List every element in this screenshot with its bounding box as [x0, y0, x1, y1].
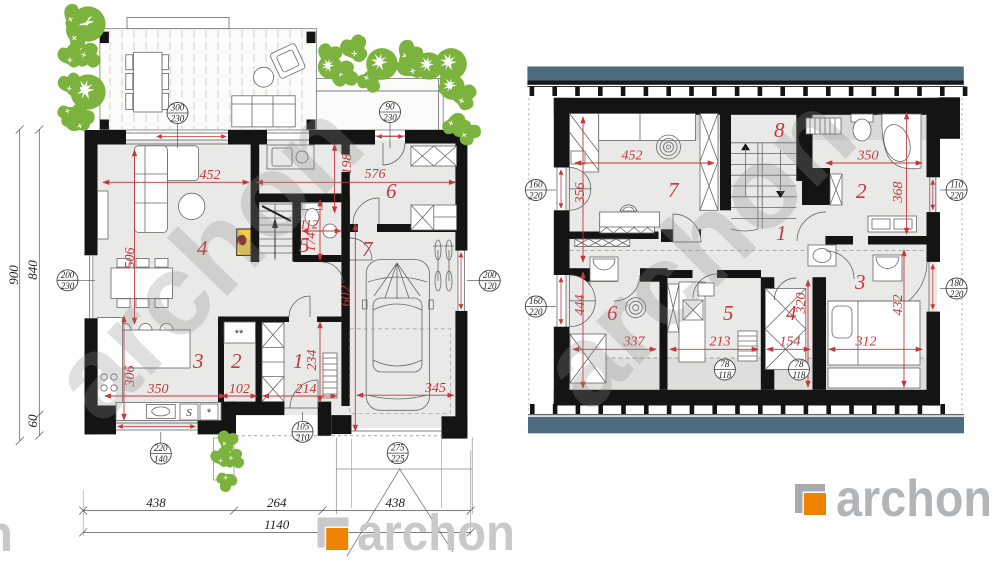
- svg-text:3: 3: [854, 270, 866, 294]
- svg-text:**: **: [235, 328, 244, 340]
- svg-text:160: 160: [529, 296, 543, 306]
- svg-text:4: 4: [786, 301, 797, 325]
- svg-text:154: 154: [780, 335, 801, 350]
- svg-text:213: 213: [710, 335, 731, 350]
- svg-text:78: 78: [720, 359, 730, 369]
- svg-text:6: 6: [386, 179, 397, 203]
- svg-text:220: 220: [950, 191, 964, 201]
- svg-text:200: 200: [61, 270, 75, 280]
- svg-text:118: 118: [793, 370, 806, 380]
- svg-text:n: n: [0, 505, 13, 562]
- svg-text:120: 120: [483, 281, 497, 291]
- svg-text:264: 264: [267, 495, 287, 510]
- svg-text:368: 368: [891, 182, 906, 204]
- svg-text:180: 180: [950, 278, 964, 288]
- svg-text:archon: archon: [357, 504, 515, 561]
- svg-text:200: 200: [483, 270, 497, 280]
- svg-text:432: 432: [891, 295, 906, 316]
- svg-text:300: 300: [170, 103, 185, 113]
- svg-text:230: 230: [171, 114, 185, 124]
- svg-text:225: 225: [391, 454, 405, 464]
- svg-text:2: 2: [231, 349, 242, 373]
- svg-text:452: 452: [622, 149, 643, 164]
- svg-text:602: 602: [339, 286, 354, 307]
- svg-text:7: 7: [362, 237, 374, 261]
- svg-text:438: 438: [146, 495, 166, 510]
- svg-text:220: 220: [154, 443, 168, 453]
- svg-text:312: 312: [855, 335, 877, 350]
- svg-text:1: 1: [293, 349, 304, 373]
- svg-text:118: 118: [718, 370, 731, 380]
- svg-text:230: 230: [61, 281, 75, 291]
- svg-text:90: 90: [386, 102, 396, 112]
- svg-text:275: 275: [391, 443, 405, 453]
- svg-text:S: S: [186, 407, 192, 419]
- svg-text:234: 234: [305, 350, 320, 371]
- svg-text:160: 160: [529, 180, 543, 190]
- svg-text:220: 220: [950, 289, 964, 299]
- svg-text:230: 230: [383, 113, 397, 123]
- svg-text:1140: 1140: [264, 517, 290, 532]
- svg-text:214: 214: [296, 382, 317, 397]
- svg-text:140: 140: [154, 454, 168, 464]
- svg-text:105: 105: [296, 421, 310, 431]
- svg-text:*: *: [207, 407, 212, 419]
- svg-text:102: 102: [229, 382, 250, 397]
- svg-text:345: 345: [424, 381, 446, 396]
- svg-text:900: 900: [6, 265, 21, 285]
- svg-text:2: 2: [856, 179, 867, 203]
- svg-text:110: 110: [950, 180, 963, 190]
- svg-text:220: 220: [529, 191, 543, 201]
- svg-text:840: 840: [25, 260, 40, 280]
- svg-text:356: 356: [573, 183, 588, 205]
- svg-text:60: 60: [25, 414, 40, 428]
- svg-text:archon: archon: [836, 470, 992, 528]
- svg-text:210: 210: [296, 432, 310, 442]
- svg-text:78: 78: [795, 359, 805, 369]
